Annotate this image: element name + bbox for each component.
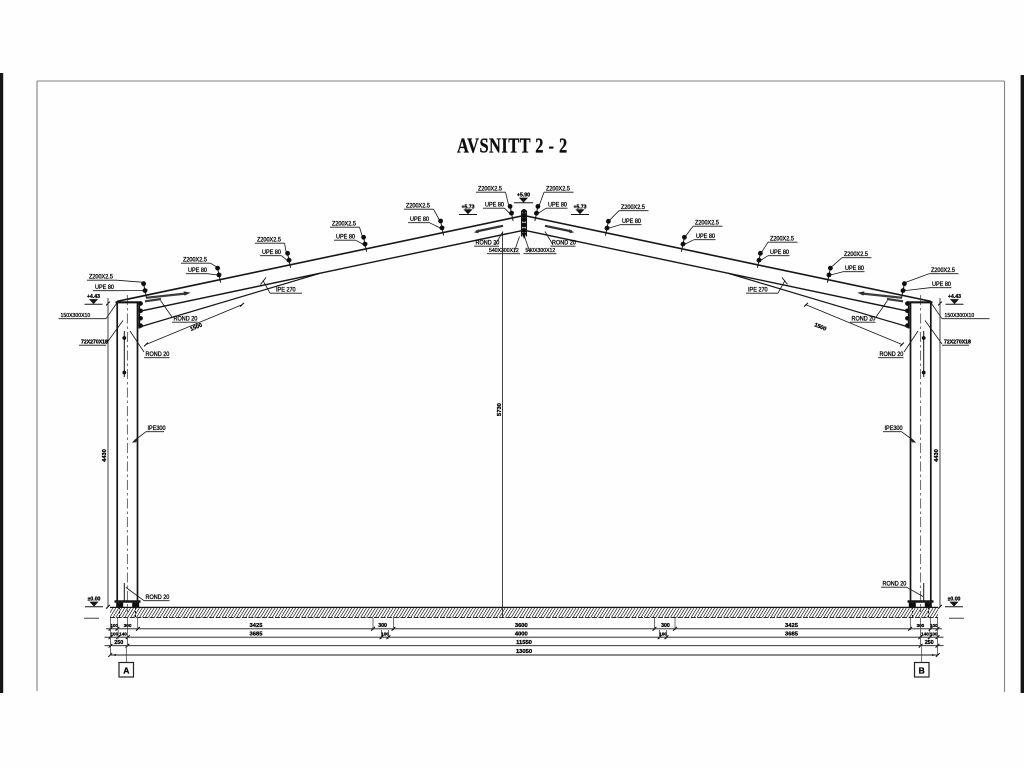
svg-text:UPE 80: UPE 80: [770, 250, 789, 256]
svg-text:140: 140: [921, 632, 929, 637]
svg-text:150X300X10: 150X300X10: [61, 313, 91, 319]
svg-text:UPE 80: UPE 80: [932, 282, 951, 288]
svg-text:Z200X2.5: Z200X2.5: [844, 252, 868, 258]
svg-text:Z200X2.5: Z200X2.5: [931, 268, 955, 274]
svg-text:Z200X2.5: Z200X2.5: [89, 274, 113, 280]
svg-text:Z200X2.5: Z200X2.5: [183, 257, 207, 263]
svg-text:3685: 3685: [250, 632, 264, 638]
svg-text:UPE 80: UPE 80: [622, 219, 641, 225]
svg-text:UPE 80: UPE 80: [188, 268, 207, 274]
svg-text:ROND 20: ROND 20: [174, 316, 198, 322]
svg-text:Z200X2.5: Z200X2.5: [406, 203, 430, 209]
svg-text:Z200X2.5: Z200X2.5: [257, 237, 281, 243]
svg-text:Z200X2.5: Z200X2.5: [332, 221, 356, 227]
svg-text:ROND 20: ROND 20: [880, 352, 904, 358]
svg-text:UPE 80: UPE 80: [548, 202, 567, 208]
svg-text:100: 100: [930, 632, 938, 637]
svg-text:IPE300: IPE300: [885, 426, 903, 432]
svg-text:250: 250: [925, 640, 934, 646]
svg-text:3685: 3685: [785, 632, 799, 638]
svg-text:540X300X12: 540X300X12: [526, 248, 556, 254]
svg-text:IPE 270: IPE 270: [276, 287, 296, 293]
svg-text:ROND 20: ROND 20: [146, 595, 170, 601]
svg-text:UPE 80: UPE 80: [262, 250, 281, 256]
svg-text:ROND 20: ROND 20: [146, 352, 170, 358]
svg-text:Z200X2.5: Z200X2.5: [770, 236, 794, 242]
svg-text:5730: 5730: [497, 403, 503, 416]
svg-text:150X300X10: 150X300X10: [945, 313, 975, 319]
svg-text:3425: 3425: [785, 623, 799, 629]
svg-text:100: 100: [659, 632, 667, 637]
svg-text:Z200X2.5: Z200X2.5: [478, 186, 502, 192]
svg-text:72X270X18: 72X270X18: [944, 339, 971, 345]
svg-text:ROND 20: ROND 20: [852, 316, 876, 322]
svg-text:Z200X2.5: Z200X2.5: [546, 186, 570, 192]
svg-text:UPE 80: UPE 80: [485, 202, 504, 208]
svg-text:4430: 4430: [102, 449, 108, 462]
svg-text:4430: 4430: [934, 449, 940, 462]
svg-text:11550: 11550: [516, 640, 532, 646]
svg-text:UPE 80: UPE 80: [410, 217, 429, 223]
svg-text:Z200X2.5: Z200X2.5: [695, 220, 719, 226]
svg-text:A: A: [123, 666, 129, 676]
svg-text:140: 140: [119, 632, 127, 637]
svg-text:72X270X18: 72X270X18: [81, 339, 108, 345]
svg-text:UPE 80: UPE 80: [336, 234, 355, 240]
svg-text:UPE 80: UPE 80: [696, 234, 715, 240]
svg-text:4000: 4000: [515, 632, 528, 638]
svg-text:UPE 80: UPE 80: [95, 285, 114, 291]
svg-text:ROND 20: ROND 20: [552, 240, 576, 246]
svg-text:3425: 3425: [250, 623, 264, 629]
svg-text:IPE 270: IPE 270: [748, 287, 768, 293]
svg-text:300: 300: [378, 623, 387, 629]
svg-text:UPE 80: UPE 80: [845, 266, 864, 272]
svg-text:300: 300: [661, 623, 670, 629]
svg-text:100: 100: [110, 623, 118, 628]
svg-text:Z200X2.5: Z200X2.5: [621, 205, 645, 211]
svg-text:13050: 13050: [516, 649, 532, 655]
svg-text:B: B: [919, 666, 925, 676]
svg-text:100: 100: [110, 632, 118, 637]
svg-text:3600: 3600: [515, 623, 528, 629]
svg-text:100: 100: [930, 623, 938, 628]
svg-text:ROND 20: ROND 20: [883, 581, 907, 587]
svg-text:250: 250: [114, 640, 123, 646]
svg-text:AVSNITT 2 - 2: AVSNITT 2 - 2: [457, 135, 568, 158]
svg-text:IPE300: IPE300: [148, 426, 166, 432]
